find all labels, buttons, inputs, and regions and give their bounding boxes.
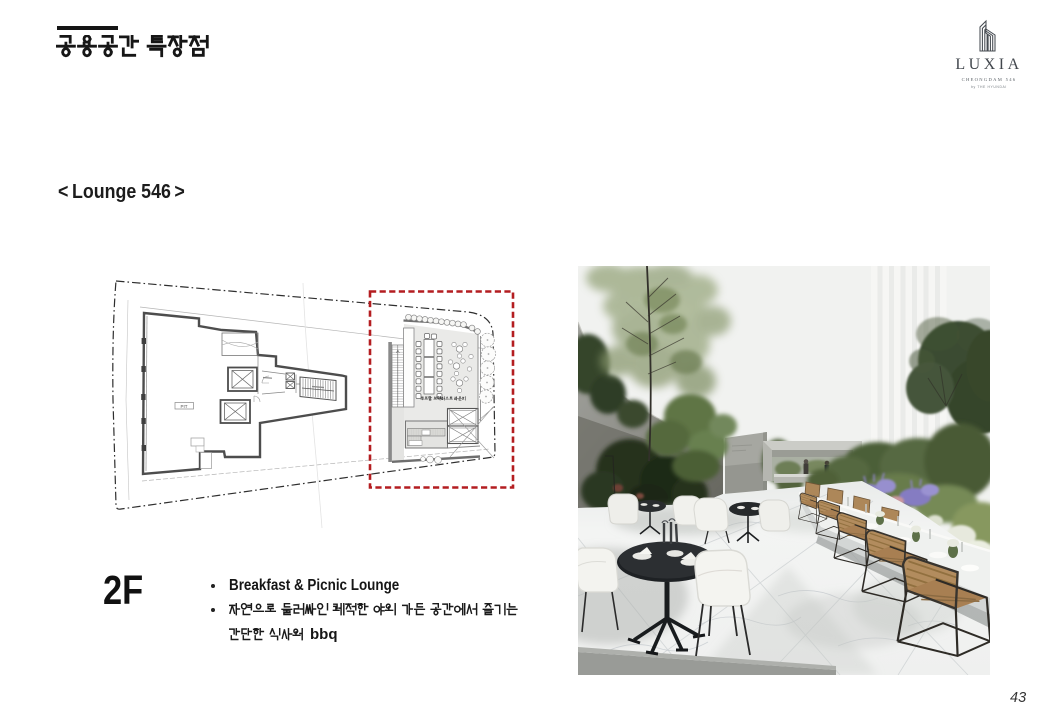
svg-text:PIT: PIT (180, 404, 187, 409)
